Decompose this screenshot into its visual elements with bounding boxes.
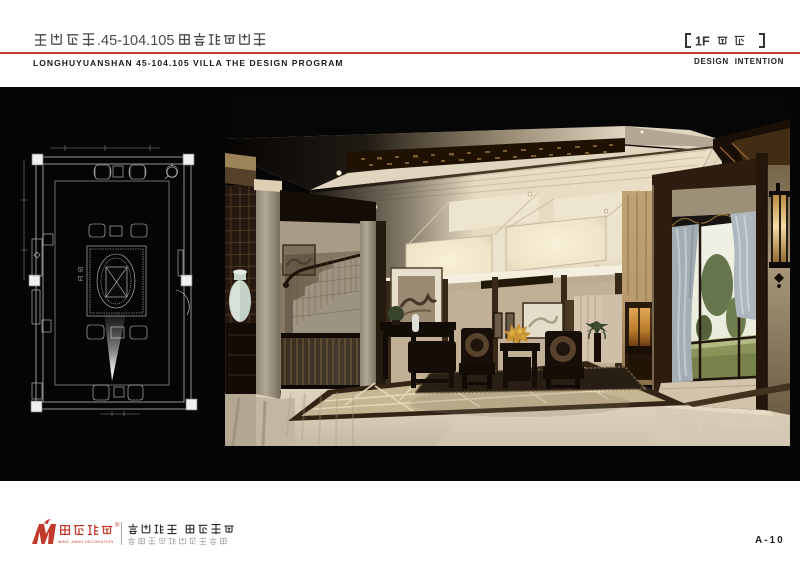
svg-text:MING JIANG DECORATION: MING JIANG DECORATION	[58, 540, 114, 544]
svg-text:®: ®	[115, 522, 120, 529]
svg-text:1F: 1F	[695, 35, 710, 49]
svg-text:.45-104.105: .45-104.105	[97, 33, 174, 49]
